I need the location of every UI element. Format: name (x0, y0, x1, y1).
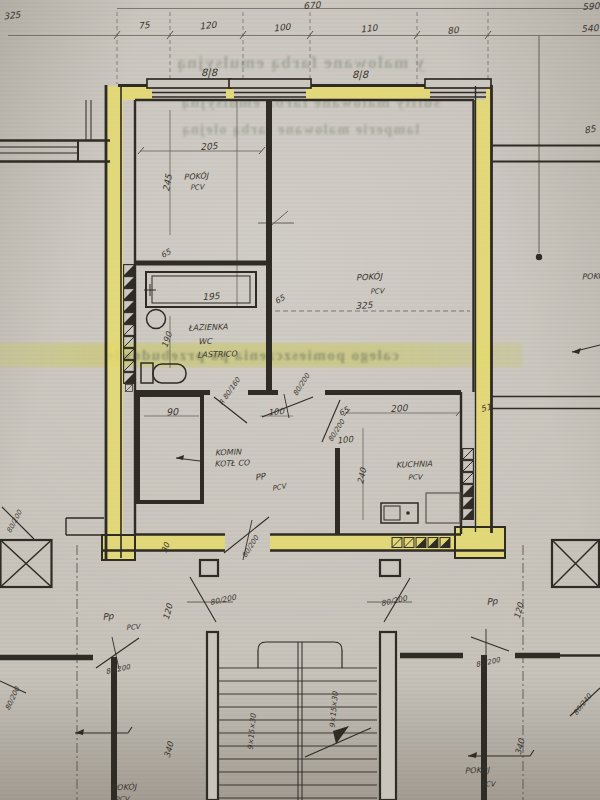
room2-area: 325 (355, 301, 373, 311)
door-label-right-wall: 80/240 (573, 693, 594, 717)
door-label-bath: R 80/160 (218, 377, 242, 407)
room1-name: POKÓJ (184, 172, 209, 181)
bathroom-floor: LASTRICO (197, 350, 237, 359)
dim-65-kitchendoor: 65 (338, 406, 351, 418)
dim-51: 51 (480, 402, 493, 413)
door-label-corridor-left: 80/200 (6, 509, 24, 534)
hall-floor: PCV (272, 483, 287, 492)
dim-670: 670 (303, 1, 321, 11)
stair-steps-right: 9×15×30 (329, 692, 340, 729)
kitchen-floor: PCV (408, 474, 422, 481)
dim-85: 85 (584, 125, 597, 136)
dim-100-bathdoor: 100 (267, 407, 284, 417)
dim-100-kitchendoor: 100 (336, 435, 353, 445)
left-flat-pp: Pp (102, 612, 114, 622)
dim-80: 80 (447, 26, 459, 36)
left-flat-floor: PCV (126, 624, 140, 632)
dim-540: 540 (581, 24, 599, 34)
left-flat-room: POKÓJ (112, 784, 137, 793)
plan-labels-layer: 67032575120100110805905408|88|885POKÓJPC… (0, 0, 600, 800)
hall-pp: PP (254, 472, 266, 482)
room2-floor: PCV (370, 288, 384, 296)
dim-100: 100 (273, 23, 291, 34)
dim-110: 110 (360, 24, 378, 35)
kitchen-name: KUCHNIA (396, 460, 433, 469)
dim-340-right: 340 (514, 738, 526, 756)
right-flat-room: POKÓJ (465, 767, 490, 776)
room2-name: POKÓJ (356, 272, 383, 282)
dim-200-kitchen: 200 (390, 404, 408, 414)
dim-205: 205 (200, 142, 218, 152)
window-sill-mark-right: 8|8 (352, 70, 368, 80)
dim-30: 30 (160, 542, 171, 554)
dim-245: 245 (162, 174, 174, 192)
door-label-left-wall: 80/200 (5, 686, 22, 711)
bathroom-wc: WC (198, 338, 212, 346)
left-flat-room-floor: PCV (115, 796, 129, 800)
right-room-name: POKÓJ (582, 273, 600, 282)
bathroom-name: ŁAZIENKA (188, 323, 228, 332)
right-flat-floor: PCV (481, 781, 495, 788)
door-label-stair-right: 80/200 (380, 595, 407, 608)
window-sill-mark-left: 8|8 (201, 68, 217, 78)
komin-name2: KOTŁ CO (214, 459, 249, 468)
dim-90: 90 (166, 407, 179, 417)
dim-120-right: 120 (513, 602, 525, 620)
door-label-room2: 80/200 (293, 373, 312, 398)
room1-floor: PCV (190, 184, 204, 192)
dim-190: 190 (160, 331, 173, 349)
door-label-right-flat: 80/200 (475, 657, 501, 669)
dim-75: 75 (138, 21, 150, 31)
dim-340-left: 340 (163, 741, 175, 759)
dim-195-tub: 195 (202, 292, 220, 302)
dim-240-kitchen: 240 (356, 467, 368, 485)
door-label-entry: 80/200 (242, 535, 261, 560)
dim-120-left: 120 (162, 603, 174, 621)
door-label-stair-left: 80/200 (209, 594, 236, 607)
komin-name: KOMIN (215, 449, 242, 458)
stair-steps-left: 9×15×30 (247, 714, 258, 751)
dim-65-bath-wall: 65 (160, 248, 173, 260)
right-flat-pp: Pp (486, 597, 498, 607)
dim-65-bathwall-right: 65 (274, 294, 287, 306)
door-label-left-flat: 80/200 (105, 664, 131, 676)
dim-590: 590 (582, 2, 600, 12)
floorplan-photo: y malowane farbą emulsyjnąsufity malowan… (0, 0, 600, 800)
dim-120: 120 (199, 21, 217, 32)
dim-325: 325 (3, 11, 21, 22)
